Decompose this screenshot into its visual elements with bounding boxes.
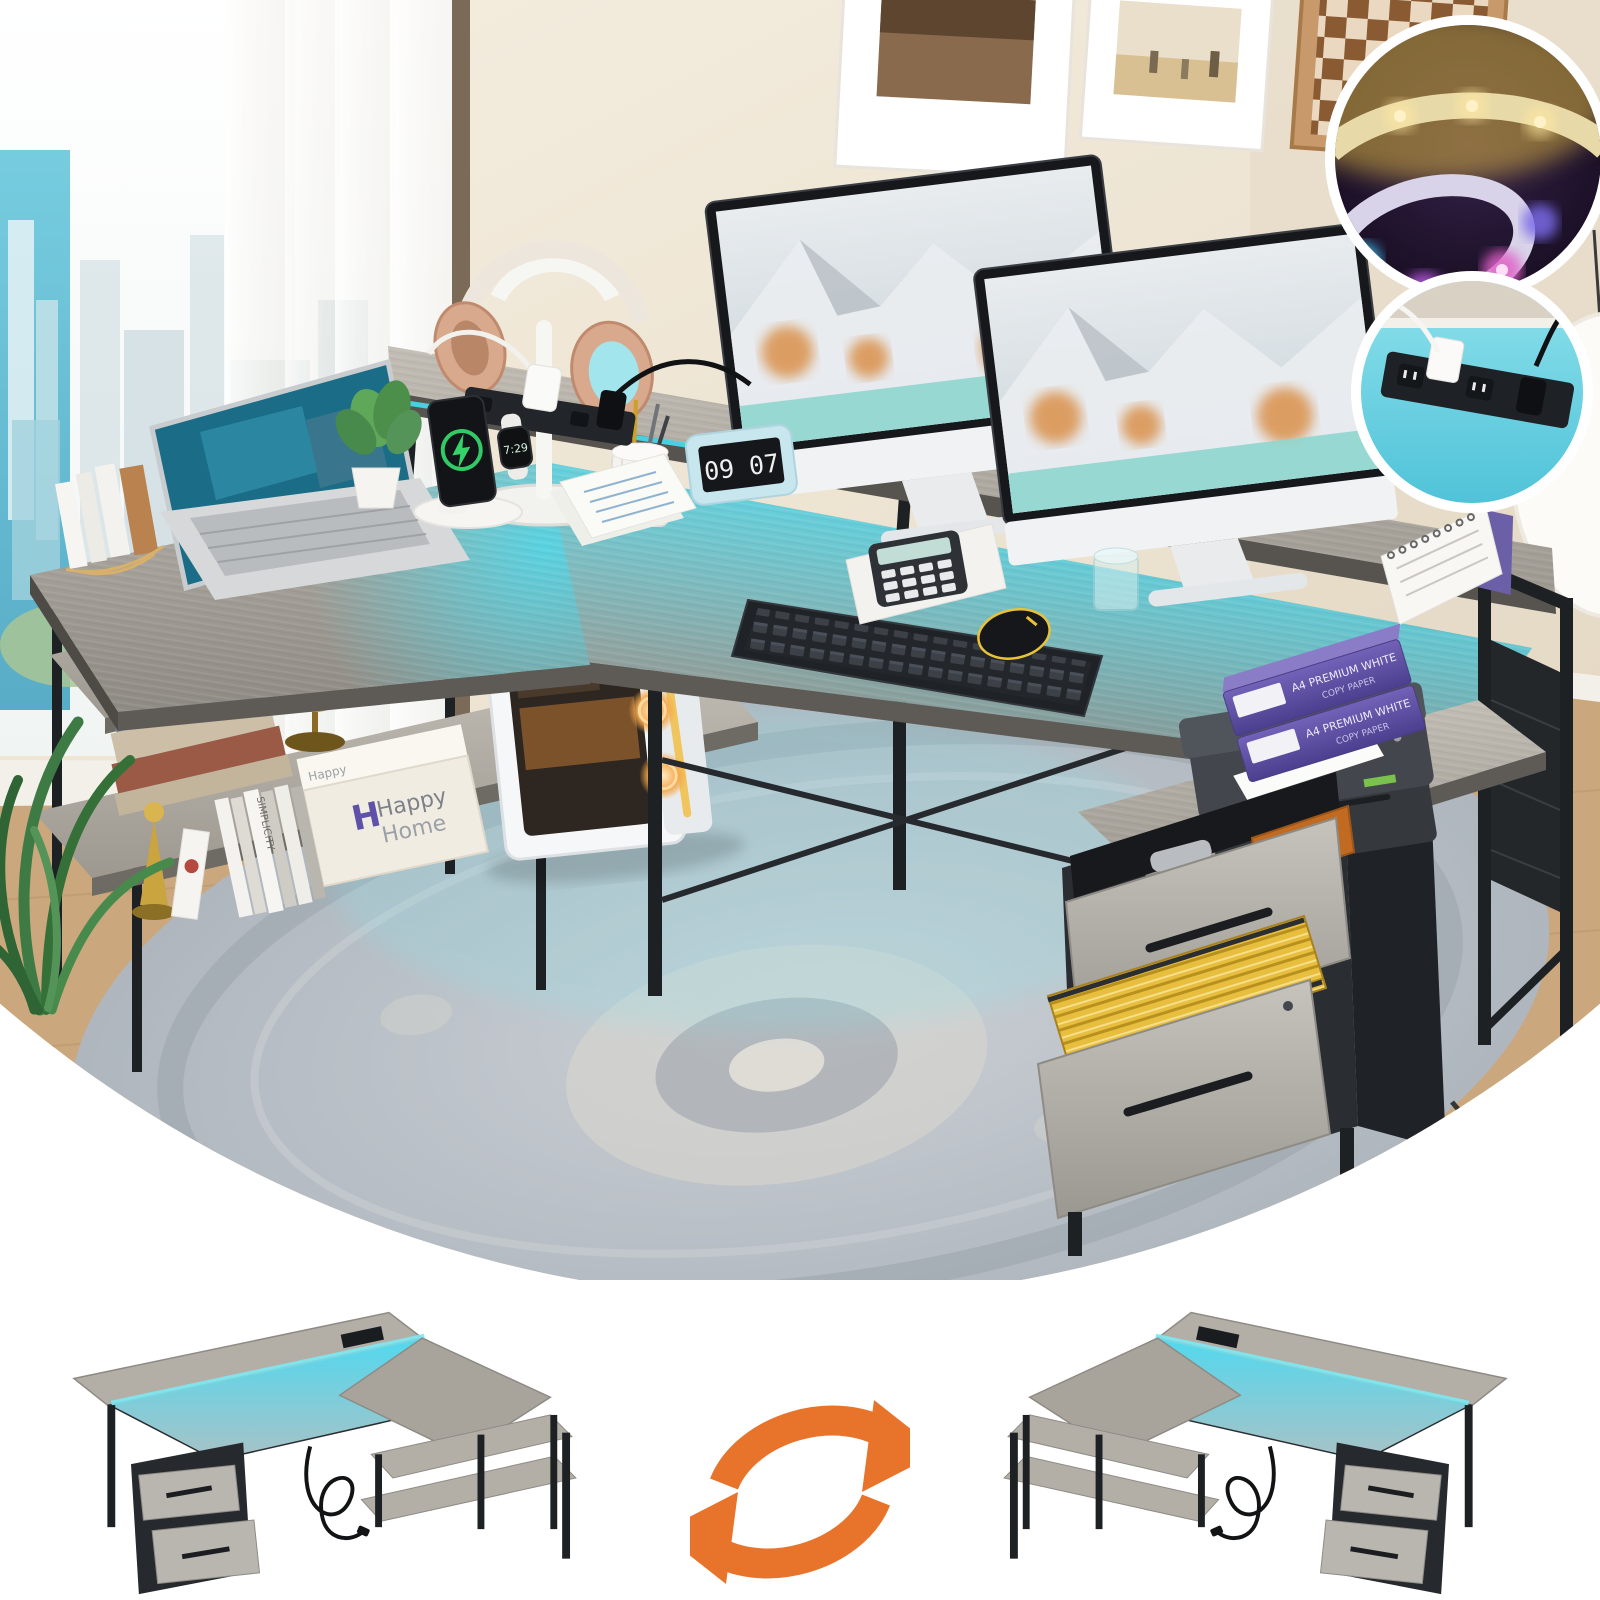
swap-arrows-icon xyxy=(690,1380,910,1600)
desk-clock: 09 07 xyxy=(684,424,798,506)
room-scene: H Happy Home Happy SIMPLICITY xyxy=(0,0,1600,1290)
picture-frame-1 xyxy=(835,0,1076,178)
white-adapter xyxy=(522,364,562,413)
thumbnail-desk-config-right xyxy=(950,1285,1570,1600)
configuration-footer xyxy=(0,1280,1600,1600)
picture-frame-2 xyxy=(1080,0,1274,151)
glass-jar xyxy=(1094,548,1138,610)
product-photo: H Happy Home Happy SIMPLICITY xyxy=(0,0,1600,1600)
thumbnail-desk-config-left xyxy=(10,1285,630,1600)
